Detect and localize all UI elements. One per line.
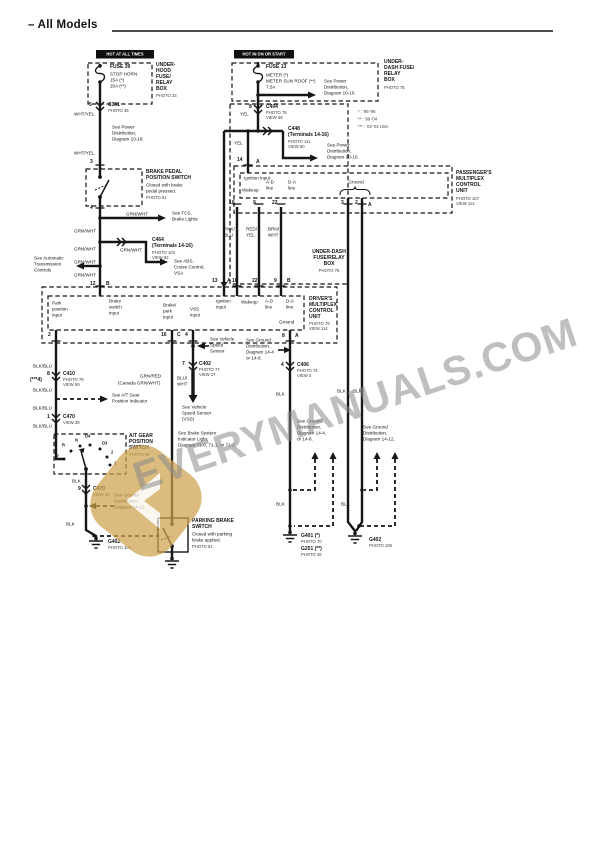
passenger-unit-photo: PHOTO 107 VIEW 112: [456, 196, 479, 206]
parking-brake-desc: Closed with parking brake applied.: [192, 531, 232, 543]
wire-blk-2: BLK: [72, 478, 81, 484]
underdash-box-label-mid: UNDER-DASH FUSE/RELAY BOX: [312, 249, 346, 267]
note-vss-lower: See Vehicle Speed Sensor (VSS): [182, 404, 211, 422]
drv-ignition-input: Ignition input: [216, 298, 231, 310]
passenger-unit-label: PASSENGER'S MULTIPLEX CONTROL UNIT: [456, 170, 492, 194]
c410-pin: 8: [47, 371, 50, 377]
wire-whtyel-1: WHT/YEL: [74, 111, 94, 117]
drv-ad-line: A-D line: [265, 298, 273, 310]
g402-left-photo: PHOTO 108: [108, 545, 131, 550]
pass-ground: Ground: [340, 179, 372, 185]
fuse39-name: FUSE 39: [110, 64, 130, 70]
drv-brake-switch-input: Brake switch input: [109, 298, 122, 316]
drv-da-line: D-A line: [286, 298, 294, 310]
wire-grnred-canada: (Canada GRN/WHT): [118, 380, 160, 386]
fuse13-detail: METER (*) METER SUN ROOF (**) 7.5A: [266, 72, 316, 90]
wire-blk-5: BLK: [353, 388, 362, 394]
diagram-scale-wrapper: – All ModelsHOT AT ALL TIMESHOT IN ON OR…: [0, 0, 612, 866]
gear-pos-p: P: [56, 454, 59, 459]
wire-whtyel-2: WHT/YEL: [74, 150, 94, 156]
drv-vss-input: VSS input: [190, 306, 200, 318]
note-abs-vsa: See ABS, Cruise Control, VSA: [174, 258, 205, 276]
drv-wakeup: Wakeup: [241, 299, 258, 305]
drv-ground: Ground: [279, 319, 294, 325]
legend-model-years: * : '96-'98 ** : '99-'04 *** : '02-'04 U…: [358, 108, 388, 131]
parking-brake-name: PARKING BRAKE SWITCH: [192, 518, 234, 530]
pass-pin-a: A: [368, 202, 372, 208]
pin-12-conn: B: [106, 281, 110, 287]
gear-pos-d4: D4: [85, 434, 90, 439]
c404-photo: PHOTO 76 VIEW 49: [266, 110, 287, 120]
wire-grnwht-4: GRN/WHT: [74, 246, 96, 252]
note-power-dist-1010a: See Power Distribution, Diagram 10-10.: [324, 78, 356, 96]
parking-brake-photo: PHOTO 81: [192, 544, 213, 549]
note-tcs: See TCS, Brake Lights: [172, 210, 198, 222]
c470-view: VIEW 38: [63, 420, 80, 425]
underdash-box-photo-mid: PHOTO 75: [312, 268, 346, 273]
c410-photo: PHOTO 79 VIEW 59: [63, 377, 84, 387]
note-auto-trans: See Automatic Transmission Controls: [34, 255, 64, 273]
pin-4: 4: [90, 205, 93, 211]
diagram-labels: – All ModelsHOT AT ALL TIMESHOT IN ON OR…: [0, 0, 612, 866]
wire-blk-7: BLK: [341, 501, 350, 507]
wire-grnwht-tcs: GRN/WHT: [126, 211, 148, 217]
drv-pin-8: 8: [282, 333, 285, 339]
pin-3: 3: [90, 159, 93, 165]
driver-unit-photo: PHOTO 79 VIEW 114: [309, 321, 330, 331]
g251-photo: PHOTO 46: [301, 552, 322, 557]
drv-pin-13: 13: [212, 278, 218, 284]
drv-brake-park-input: Brake/ park input: [163, 302, 176, 320]
c301-photo: PHOTO 35: [108, 108, 129, 113]
gear-pos-n: N: [75, 438, 78, 443]
c448-name: C448 (Terminals 14-16): [288, 126, 329, 138]
pass-da-line: D-A line: [288, 179, 296, 191]
wire-yel-1: YEL: [240, 111, 249, 117]
pass-pin-9: 9: [253, 200, 256, 206]
pass-pin-2: 2: [355, 200, 358, 206]
brake-pedal-switch-name: BRAKE PEDAL POSITION SWITCH: [146, 169, 191, 181]
wire-blk-4: BLK: [337, 388, 346, 394]
note-ground-dist-1412-left: See Ground Distribution, Diagram 14-12.: [114, 492, 146, 510]
at-gear-switch-label: A/T GEAR POSITION SWITCH: [129, 433, 153, 451]
pin-12: 12: [90, 281, 96, 287]
g401-photo: PHOTO 70: [301, 539, 322, 544]
hot-in-on-or-start-tag: HOT IN ON OR START: [234, 50, 294, 59]
underdash-box-label-top: UNDER- DASH FUSE/ RELAY BOX: [384, 59, 414, 83]
wire-pnkblu: PNK/ BLU: [224, 226, 235, 238]
c301-pin: 5: [89, 102, 92, 108]
at-gear-switch-photo: PHOTO 66: [129, 452, 150, 457]
wire-blkblu-4: BLK/BLU: [33, 423, 52, 429]
page-title: – All Models: [28, 21, 98, 27]
c464-photo: PHOTO 103 VIEW 82: [152, 250, 175, 260]
hot-at-all-times-tag: HOT AT ALL TIMES: [96, 50, 154, 59]
c470b-pin: 9: [78, 486, 81, 492]
alt-terminal-note: (***4): [30, 377, 42, 383]
wire-yel-2: YEL: [234, 140, 243, 146]
note-at-indicator: See A/T Gear Position Indicator: [112, 392, 147, 404]
drv-pin-4: 4: [185, 332, 188, 338]
note-ground-dist-1412-right: See Ground Distribution, Diagram 14-12.: [363, 424, 395, 442]
wire-blk-1: BLK: [276, 391, 285, 397]
drv-pin-9: 9: [274, 278, 277, 284]
c406-photo: PHOTO 74 VIEW 3: [297, 368, 318, 378]
c402-pin: 7: [182, 361, 185, 367]
pass-ad-line: A-D line: [266, 179, 274, 191]
c470b-view: VIEW 38: [93, 492, 110, 497]
pass-pin-22: 22: [272, 200, 278, 206]
c448-photo: PHOTO 111 VIEW 80: [288, 139, 310, 149]
underdash-box-photo-top: PHOTO 75: [384, 85, 405, 90]
pin-14: 14: [237, 157, 243, 163]
brake-pedal-switch-photo: PHOTO 81: [146, 195, 167, 200]
c404-pin: 8: [249, 104, 252, 110]
c406-pin: 4: [281, 362, 284, 368]
c402-photo: PHOTO 77 VIEW 27: [199, 367, 220, 377]
pass-pin-10: 10: [229, 200, 235, 206]
gear-pos-r: R: [62, 443, 65, 448]
pin-14-conn: A: [256, 159, 260, 165]
wire-blkblu-1: BLK/BLU: [33, 363, 52, 369]
note-power-dist-1010b: See Power Distribution, Diagram 10-10.: [327, 142, 359, 160]
wire-blk-3: BLK: [66, 521, 75, 527]
wire-brnwht: BRN/ WHT: [268, 226, 279, 238]
drv-pin-22: 22: [252, 278, 258, 284]
wire-grnwht-5: GRN/WHT: [74, 259, 96, 265]
drv-pin-16: 16: [161, 332, 167, 338]
c470-pin: 1: [47, 414, 50, 420]
driver-unit-label: DRIVER'S MULTIPLEX CONTROL UNIT: [309, 296, 337, 320]
drv-pin-13-conn: A: [227, 278, 231, 284]
drv-pin-9-conn: B: [287, 278, 291, 284]
gear-pos-d3: D3: [102, 441, 107, 446]
pass-pin-3: 3: [341, 200, 344, 206]
drv-pin-16-conn: C: [177, 332, 181, 338]
note-vss-upper: See Vehicle Speed Sensor: [210, 336, 234, 354]
wire-bluwht: BLU/ WHT: [177, 375, 187, 387]
drv-pin-8-conn: A: [295, 333, 299, 339]
drv-park-position-input: Park position input: [52, 300, 68, 318]
note-ground-dist-drv: See Ground Distribution, Diagram 14-4 or…: [246, 337, 274, 361]
wire-grnwht-6: GRN/WHT: [74, 272, 96, 278]
fuse39-detail: STOP HORN 15A (*) 20A (**): [110, 71, 137, 89]
gear-pos-2: 2: [111, 450, 113, 455]
g402-right-photo: PHOTO 106: [369, 543, 392, 548]
wire-blkblu-3: BLK/BLU: [33, 405, 52, 411]
brake-pedal-switch-desc: Closed with brake pedal pressed.: [146, 182, 183, 194]
wire-blkblu-2: BLK/BLU: [33, 387, 52, 393]
wire-grnred: GRN/RED: [140, 373, 161, 379]
wire-blk-6: BLK: [276, 501, 285, 507]
gear-pos-1: 1: [114, 461, 116, 466]
note-ground-dist-148-right: See Ground Distribution, Diagram 14-4, o…: [297, 418, 326, 442]
underhood-box-photo: PHOTO 33: [156, 93, 177, 98]
wire-grnwht-3: GRN/WHT: [120, 247, 142, 253]
note-brake-indicator: See Brake System Indicator Light, Diagra…: [178, 430, 236, 448]
drv-pin-2: 2: [48, 332, 51, 338]
drv-pin-10: 10: [232, 278, 238, 284]
note-power-dist-1018: See Power Distribution, Diagram 10-18.: [112, 124, 144, 142]
wire-grnwht-2: GRN/WHT: [74, 228, 96, 234]
wire-redyel: RED/ YEL: [246, 226, 257, 238]
pass-wakeup: Wakeup: [242, 187, 259, 193]
fuse13-name: FUSE 13: [266, 64, 286, 70]
underhood-box-label: UNDER- HOOD FUSE/ RELAY BOX: [156, 62, 175, 92]
c464-name: C464 (Terminals 14-16): [152, 237, 193, 249]
manual-page: – All ModelsHOT AT ALL TIMESHOT IN ON OR…: [0, 0, 612, 866]
